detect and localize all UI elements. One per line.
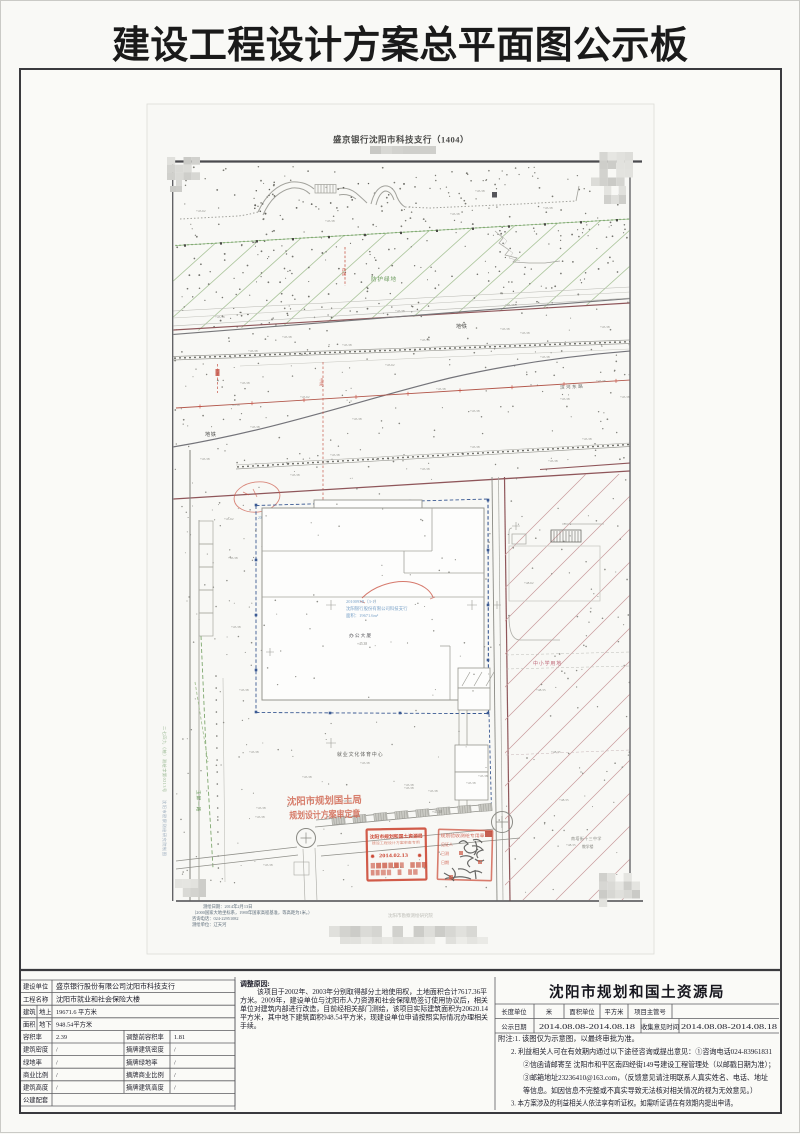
svg-text:摘牌建筑高度: 摘牌建筑高度 <box>126 1083 164 1092</box>
svg-text:公建配套: 公建配套 <box>23 1095 49 1104</box>
svg-text:+45.38: +45.38 <box>325 219 335 223</box>
svg-text:+45.38: +45.38 <box>600 325 610 329</box>
svg-text:2014.08.08-2014.08.18: 2014.08.08-2014.08.18 <box>681 1023 778 1031</box>
svg-text:沈阳市勘察测绘研究院制图: 沈阳市勘察测绘研究院制图 <box>161 800 168 856</box>
svg-text:规划验收测绘专用章: 规划验收测绘专用章 <box>441 832 485 838</box>
svg-text:+45.38: +45.38 <box>357 642 367 646</box>
svg-text:1.81: 1.81 <box>174 1034 185 1041</box>
svg-text:地下: 地下 <box>39 1020 52 1029</box>
svg-text:+45.38: +45.38 <box>231 625 241 629</box>
svg-text:中线: 中线 <box>319 378 325 386</box>
svg-text:+45.38: +45.38 <box>420 338 430 342</box>
svg-text:+45.38: +45.38 <box>352 417 362 421</box>
svg-text:摘牌绿地率: 摘牌绿地率 <box>126 1057 157 1066</box>
svg-text:+45.38: +45.38 <box>360 761 370 765</box>
svg-text:就业文化体育中心: 就业文化体育中心 <box>337 751 383 758</box>
svg-text:面积：19671.6m²: 面积：19671.6m² <box>346 612 379 619</box>
svg-text:地铁: 地铁 <box>205 430 217 438</box>
svg-text:/: / <box>174 1047 176 1054</box>
svg-text:地上: 地上 <box>39 1007 52 1016</box>
svg-text:调整原因:: 调整原因: <box>240 979 270 988</box>
svg-text:商业比例: 商业比例 <box>23 1070 48 1079</box>
svg-text:+45.38: +45.38 <box>200 457 210 461</box>
svg-text:长度单位: 长度单位 <box>501 1007 527 1016</box>
svg-text:2. 利益相关人可在有效期内通过以下途径咨询或提出意见：①咨: 2. 利益相关人可在有效期内通过以下途径咨询或提出意见：①咨询电话024-839… <box>511 1047 772 1056</box>
svg-text:建设工程设计方案审查专用: 建设工程设计方案审查专用 <box>372 840 421 846</box>
svg-text:+45.38: +45.38 <box>428 789 438 793</box>
svg-text:+45.38: +45.38 <box>478 774 488 778</box>
svg-text:+45.62: +45.62 <box>385 363 395 367</box>
svg-text:/: / <box>56 1072 58 1079</box>
svg-text:已测: 已测 <box>441 850 449 856</box>
svg-text:教学楼: 教学楼 <box>582 844 594 849</box>
svg-text:+48.62: +48.62 <box>524 581 534 585</box>
svg-text:+45.38: +45.38 <box>228 556 238 560</box>
svg-text:手续。: 手续。 <box>240 1021 261 1030</box>
svg-text:沈阳银行股份有限公司科技支行: 沈阳银行股份有限公司科技支行 <box>346 605 408 612</box>
svg-text:③邮箱地址23236410@163.com，（反馈意见请注明: ③邮箱地址23236410@163.com，（反馈意见请注明联系人真实姓名、电话… <box>523 1073 768 1082</box>
svg-text:+45.38: +45.38 <box>582 437 592 441</box>
svg-text:平方米，其中地下建筑面积948.54平方米，现建设单位申请按: 平方米，其中地下建筑面积948.54平方米，现建设单位申请按照实际情况办理相关 <box>240 1013 488 1022</box>
svg-text:+45.38: +45.38 <box>620 395 630 399</box>
svg-text:+45.38: +45.38 <box>560 397 570 401</box>
svg-text:+45.38: +45.38 <box>215 315 225 319</box>
svg-text:+45.38: +45.38 <box>500 327 510 331</box>
svg-text:收集意见时间: 收集意见时间 <box>641 1022 679 1031</box>
svg-text:+48.35: +48.35 <box>551 750 561 754</box>
svg-text:+48.35: +48.35 <box>566 843 576 847</box>
svg-text:+48.35: +48.35 <box>536 688 546 692</box>
svg-text:测绘单位：辽天河: 测绘单位：辽天河 <box>192 921 227 928</box>
svg-text:+45.38: +45.38 <box>256 806 266 810</box>
svg-text:+45.62: +45.62 <box>196 209 206 213</box>
svg-text:盛京银行沈阳市科技支行（1404）: 盛京银行沈阳市科技支行（1404） <box>333 135 469 145</box>
svg-text:+45.38: +45.38 <box>505 303 515 307</box>
svg-text:中小学用地: 中小学用地 <box>533 660 562 667</box>
svg-text:/: / <box>174 1072 176 1079</box>
svg-text:+45.38: +45.38 <box>436 387 446 391</box>
svg-text:单位对建筑内部进行改造，目前经相关部门测绘，该项目实际建筑面: 单位对建筑内部进行改造，目前经相关部门测绘，该项目实际建筑面积为20620.14 <box>240 1004 489 1013</box>
svg-text:容积率: 容积率 <box>23 1032 42 1041</box>
svg-text:+45.38: +45.38 <box>250 425 260 429</box>
svg-text:平方米: 平方米 <box>605 1007 625 1016</box>
svg-text:+45.38: +45.38 <box>239 688 249 692</box>
svg-text:建筑密度: 建筑密度 <box>23 1045 49 1054</box>
svg-text:+45.38: +45.38 <box>342 343 352 347</box>
svg-text:调整前容积率: 调整前容积率 <box>126 1032 164 1041</box>
svg-text:+45.38: +45.38 <box>330 453 340 457</box>
svg-text:盛京银行股份有限公司沈阳市科技支行: 盛京银行股份有限公司沈阳市科技支行 <box>56 982 175 991</box>
svg-text:绿地率: 绿地率 <box>23 1057 42 1066</box>
svg-text:+45.38: +45.38 <box>470 445 480 449</box>
svg-text:+45.38: +45.38 <box>420 467 430 471</box>
svg-text:3. 本方案涉及的利益相关人依法享有听证权。如需听证请在有效: 3. 本方案涉及的利益相关人依法享有听证权。如需听证请在有效期内提出申请。 <box>511 1099 737 1108</box>
svg-text:2010093B（3-1）: 2010093B（3-1） <box>346 599 379 604</box>
svg-text:摘牌商业比例: 摘牌商业比例 <box>126 1070 164 1079</box>
svg-text:19671.6 平方米: 19671.6 平方米 <box>56 1007 98 1016</box>
svg-text:建设单位: 建设单位 <box>23 982 49 991</box>
svg-text:+45.38: +45.38 <box>450 212 460 216</box>
svg-text:+45.38: +45.38 <box>432 810 442 814</box>
svg-text:2014.02.13: 2014.02.13 <box>379 853 409 860</box>
svg-text:测绘日期：2014年2月13日: 测绘日期：2014年2月13日 <box>203 903 252 910</box>
svg-text:+45.38: +45.38 <box>395 309 405 313</box>
svg-text:咨询电话：024-22951082: 咨询电话：024-22951082 <box>192 915 239 922</box>
svg-text:+45.38: +45.38 <box>404 783 414 787</box>
svg-text:公示日期: 公示日期 <box>501 1023 526 1031</box>
svg-text:面积单位: 面积单位 <box>569 1007 595 1016</box>
svg-text:+45.38: +45.38 <box>470 409 480 413</box>
svg-text:南塔街十三中学: 南塔街十三中学 <box>571 835 602 841</box>
svg-text:+45.38: +45.38 <box>248 349 258 353</box>
svg-text:+45.38: +45.38 <box>282 335 292 339</box>
svg-text:/: / <box>56 1047 58 1054</box>
svg-text:+45.38: +45.38 <box>548 459 558 463</box>
svg-text:建筑高度: 建筑高度 <box>23 1083 49 1092</box>
svg-text:+45.38: +45.38 <box>543 206 553 210</box>
svg-text:+45.62: +45.62 <box>300 395 310 399</box>
svg-text:建筑: 建筑 <box>23 1007 36 1016</box>
svg-text:/: / <box>56 1059 58 1066</box>
svg-text:米: 米 <box>546 1007 553 1016</box>
svg-text:+45.38: +45.38 <box>520 331 530 335</box>
svg-text:✹: ✹ <box>417 853 422 860</box>
svg-text:见证人: 见证人 <box>441 841 453 847</box>
svg-text:/: / <box>56 1085 58 1092</box>
svg-text:沈阳市勘察测绘研究院: 沈阳市勘察测绘研究院 <box>388 912 433 919</box>
svg-text:摘牌建筑密度: 摘牌建筑密度 <box>126 1045 164 1054</box>
svg-text:办公大厦: 办公大厦 <box>349 632 372 639</box>
svg-text:防护绿地: 防护绿地 <box>371 275 397 283</box>
svg-text:玉屏一路: 玉屏一路 <box>195 790 202 812</box>
svg-text:该项目于2002年、2003年分别取得部分土地使用权，土地面: 该项目于2002年、2003年分别取得部分土地使用权，土地面积合计7617.36… <box>257 987 487 996</box>
svg-text:②信函请邮寄至 沈阳市和平区南四经街149号建设工程管理处（: ②信函请邮寄至 沈阳市和平区南四经街149号建设工程管理处（以邮戳日期为准）； <box>523 1060 775 1069</box>
svg-text:+45.38: +45.38 <box>475 189 485 193</box>
svg-text:+45.38: +45.38 <box>302 775 312 779</box>
svg-text:+45.38: +45.38 <box>255 815 265 819</box>
svg-text:日期: 日期 <box>441 859 449 865</box>
svg-text:沈阳市就业和社会保险大楼: 沈阳市就业和社会保险大楼 <box>56 994 140 1003</box>
svg-text:+45.38: +45.38 <box>263 863 273 867</box>
svg-text:（2000国家大地坐标系，1980年国家高程基准，等高距为1: （2000国家大地坐标系，1980年国家高程基准，等高距为1米。） <box>192 909 312 916</box>
svg-text:+45.38: +45.38 <box>230 403 240 407</box>
svg-text:✹: ✹ <box>370 853 375 860</box>
svg-text:+45.38: +45.38 <box>466 781 476 785</box>
svg-text:+48.35: +48.35 <box>559 798 569 802</box>
svg-text:方米。2009年，建设单位与沈阳市人力资源和社会保障局签订使: 方米。2009年，建设单位与沈阳市人力资源和社会保障局签订使用协议后，相关 <box>240 996 488 1005</box>
svg-text:+45.38: +45.38 <box>240 381 250 385</box>
svg-text:面积: 面积 <box>23 1020 36 1029</box>
svg-text:附注:1. 该图仅为示意图，以最终审批为准。: 附注:1. 该图仅为示意图，以最终审批为准。 <box>498 1034 639 1043</box>
svg-text:/: / <box>174 1059 176 1066</box>
svg-text:沈阳市规划和国土资源局: 沈阳市规划和国土资源局 <box>549 983 725 1001</box>
svg-text:948.54平方米: 948.54平方米 <box>56 1020 93 1029</box>
svg-text:2014.08.08-2014.08.18: 2014.08.08-2014.08.18 <box>539 1023 636 1031</box>
svg-text:+45.38: +45.38 <box>249 750 259 754</box>
svg-text:二七四九（统）测绘字第0213号: 二七四九（统）测绘字第0213号 <box>161 726 168 793</box>
svg-text:红线: 红线 <box>342 268 348 276</box>
svg-text:+45.38: +45.38 <box>540 355 550 359</box>
svg-text:+45.38: +45.38 <box>290 473 300 477</box>
svg-text:等信息。如因信息不完整或不真实导致无法核对相关情况的视为无效: 等信息。如因信息不完整或不真实导致无法核对相关情况的视为无效意见。） <box>523 1086 757 1095</box>
svg-text:项目主管号: 项目主管号 <box>634 1007 665 1016</box>
svg-text:2.39: 2.39 <box>56 1034 67 1041</box>
svg-text:+45.38: +45.38 <box>596 379 606 383</box>
svg-text:/: / <box>174 1085 176 1092</box>
svg-text:工程名称: 工程名称 <box>23 994 49 1003</box>
